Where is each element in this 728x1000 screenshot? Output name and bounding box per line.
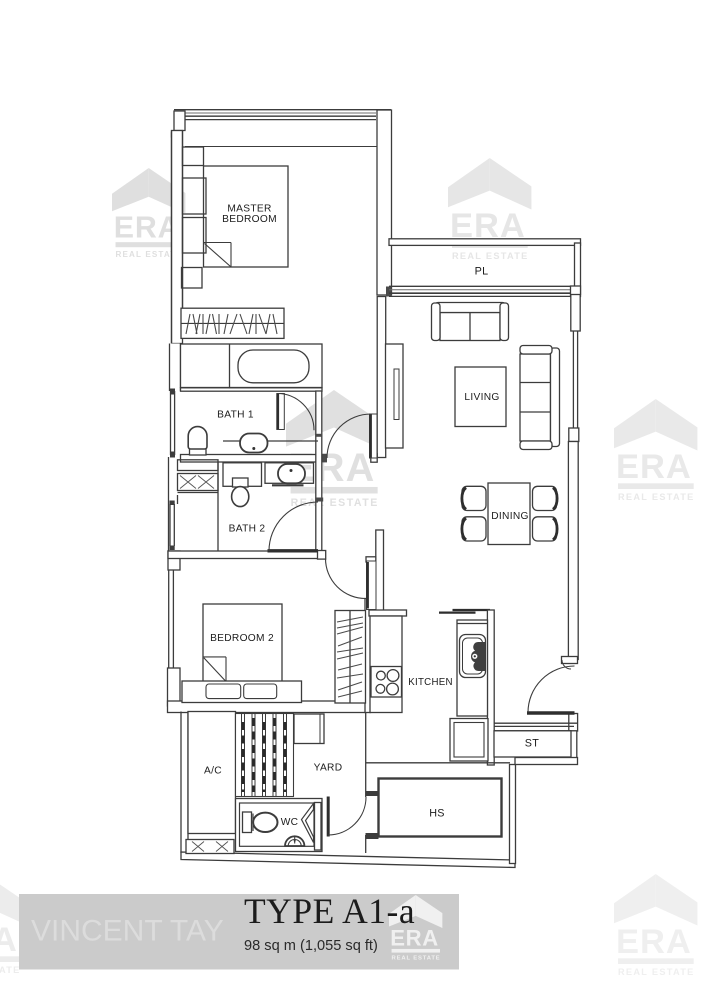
svg-text:BATH 1: BATH 1 — [217, 410, 254, 421]
svg-text:DINING: DINING — [491, 511, 528, 522]
svg-text:BEDROOM: BEDROOM — [222, 214, 277, 225]
svg-text:HS: HS — [429, 808, 445, 820]
svg-text:A/C: A/C — [204, 766, 222, 777]
svg-text:PL: PL — [475, 266, 489, 278]
svg-text:TYPE A1-a: TYPE A1-a — [244, 891, 415, 931]
svg-text:LIVING: LIVING — [464, 392, 499, 403]
svg-text:BATH 2: BATH 2 — [229, 524, 266, 535]
svg-text:KITCHEN: KITCHEN — [408, 677, 453, 688]
svg-text:YARD: YARD — [314, 763, 343, 774]
svg-text:BEDROOM 2: BEDROOM 2 — [210, 633, 274, 644]
svg-text:98 sq m (1,055 sq ft): 98 sq m (1,055 sq ft) — [244, 938, 378, 954]
svg-text:ST: ST — [525, 738, 540, 750]
svg-text:VINCENT TAY: VINCENT TAY — [31, 915, 224, 948]
svg-text:MASTER: MASTER — [227, 204, 271, 215]
svg-text:WC: WC — [281, 817, 299, 828]
